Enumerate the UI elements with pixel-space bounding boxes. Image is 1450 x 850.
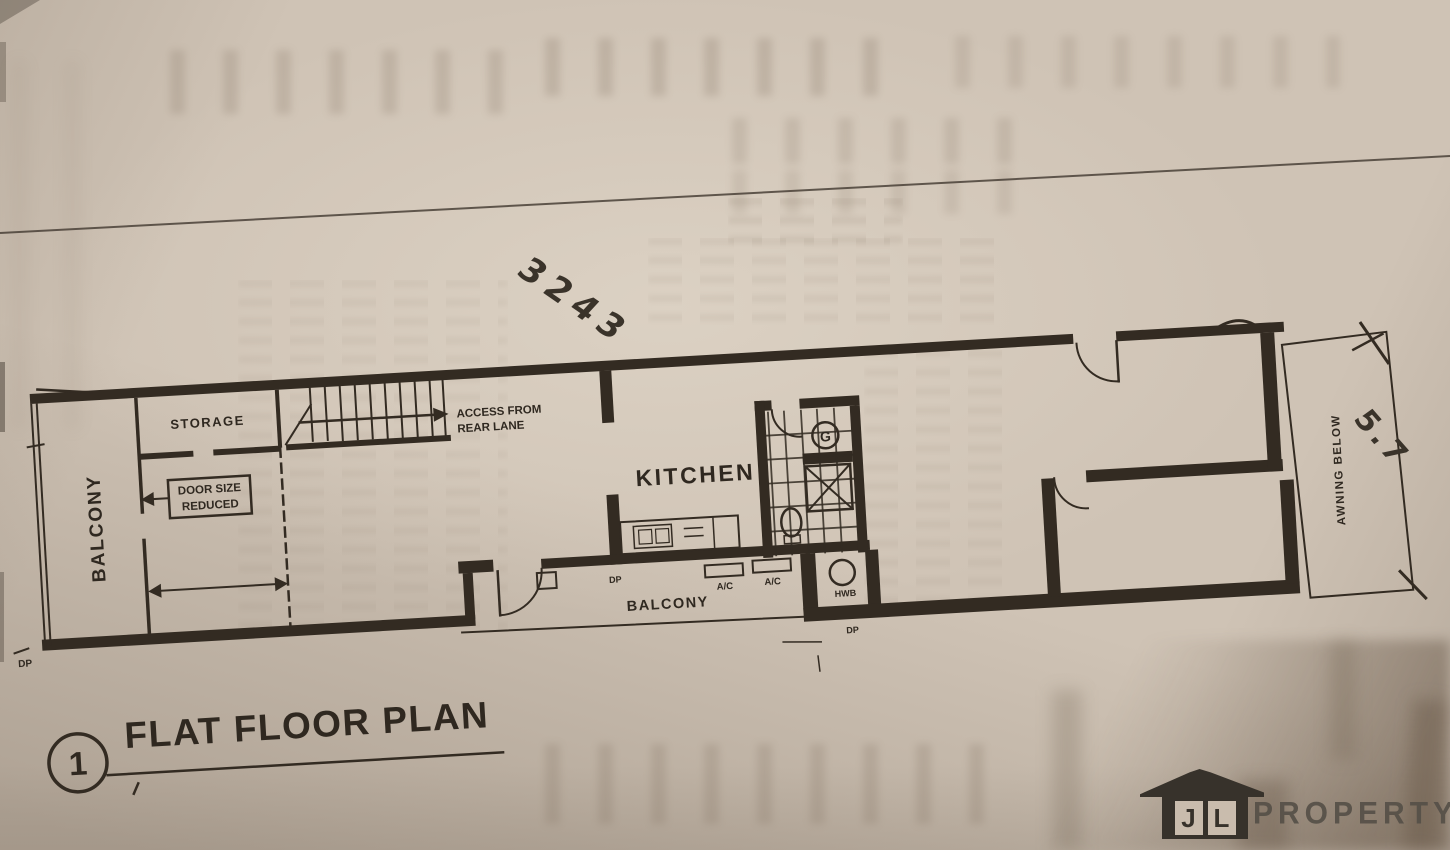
logo-wordmark: PROPERTY	[1253, 796, 1450, 832]
jl-property-watermark: J L PROPERTY	[1138, 769, 1450, 849]
logo-house-body-icon: J L	[1162, 796, 1248, 839]
access-note-line1: ACCESS FROM	[456, 404, 542, 421]
handwritten-dimension-top: 3243	[509, 250, 640, 352]
room-label-balcony-bottom: BALCONY	[626, 594, 709, 615]
access-note-line2: REAR LANE	[457, 420, 525, 436]
ac-label-1: A/C	[716, 581, 733, 593]
ac-unit-1	[705, 563, 744, 577]
room-label-balcony-left: BALCONY	[83, 474, 110, 583]
ac-label-2: A/C	[764, 576, 781, 588]
page-fold-line	[0, 156, 1450, 233]
room-label-kitchen: KITCHEN	[635, 458, 756, 491]
awning-label: AWNING BELOW	[1330, 414, 1348, 526]
page-title: FLAT FLOOR PLAN	[123, 694, 490, 756]
logo-letter-j: J	[1175, 801, 1203, 835]
hwb-label: HWB	[834, 588, 857, 599]
door-note-line2: REDUCED	[182, 498, 239, 513]
handwritten-dimension-right: 5.7	[1346, 404, 1418, 473]
floor-plan-drawing: BALCONY STORAGE DOOR SIZE REDUCED ACCESS…	[0, 0, 1450, 850]
photo-edge-marks	[0, 0, 40, 662]
gas-heater-label: G	[820, 428, 832, 445]
room-label-storage: STORAGE	[170, 413, 245, 432]
detail-number: 1	[68, 744, 88, 782]
dp-label-kitchen: DP	[609, 574, 622, 585]
logo-letter-l: L	[1208, 801, 1236, 835]
plan-rotated-group: BALCONY STORAGE DOOR SIZE REDUCED ACCESS…	[0, 200, 1433, 800]
door-note-line1: DOOR SIZE	[178, 482, 242, 498]
logo-house-roof-icon	[1140, 769, 1264, 797]
dp-label-bottom: DP	[846, 625, 859, 636]
ac-unit-2	[752, 558, 791, 572]
dp-label-edge: DP	[18, 658, 33, 670]
scanned-floor-plan-photo: BALCONY STORAGE DOOR SIZE REDUCED ACCESS…	[0, 0, 1450, 850]
